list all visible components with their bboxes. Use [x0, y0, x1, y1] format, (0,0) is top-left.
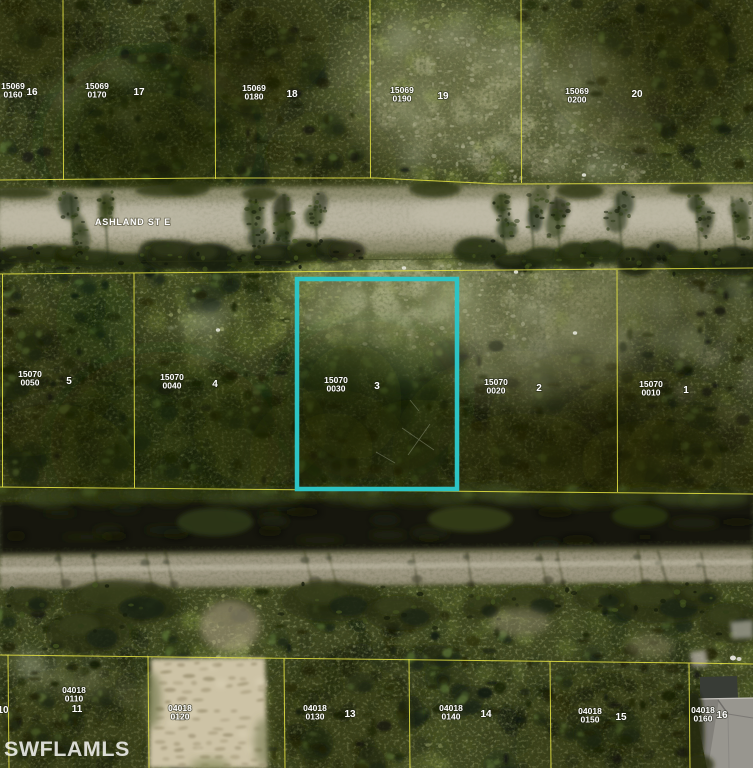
- svg-text:0190: 0190: [393, 94, 412, 104]
- svg-text:2: 2: [536, 383, 542, 394]
- svg-text:0050: 0050: [21, 378, 40, 388]
- svg-text:0110: 0110: [65, 694, 84, 704]
- svg-text:0160: 0160: [694, 714, 713, 724]
- svg-text:0140: 0140: [442, 712, 461, 722]
- svg-text:0150: 0150: [581, 715, 600, 725]
- svg-text:SWFLAMLS: SWFLAMLS: [4, 737, 130, 761]
- svg-text:0010: 0010: [642, 388, 661, 398]
- svg-text:0200: 0200: [568, 95, 587, 105]
- svg-text:0040: 0040: [163, 381, 182, 391]
- svg-text:5: 5: [66, 376, 72, 387]
- svg-text:16: 16: [26, 87, 38, 98]
- svg-text:0160: 0160: [4, 90, 23, 100]
- svg-text:0120: 0120: [171, 712, 190, 722]
- svg-text:19: 19: [437, 91, 449, 102]
- svg-text:0020: 0020: [487, 386, 506, 396]
- svg-text:0180: 0180: [245, 92, 264, 102]
- svg-text:17: 17: [133, 87, 145, 98]
- svg-text:3: 3: [374, 381, 380, 392]
- svg-text:10: 10: [0, 705, 9, 716]
- svg-text:11: 11: [72, 704, 83, 715]
- svg-text:15: 15: [615, 712, 627, 723]
- svg-text:14: 14: [480, 709, 492, 720]
- svg-text:4: 4: [212, 379, 218, 390]
- svg-text:13: 13: [344, 709, 356, 720]
- svg-text:20: 20: [631, 89, 643, 100]
- svg-text:0130: 0130: [306, 712, 325, 722]
- svg-text:1: 1: [683, 385, 689, 396]
- svg-text:0170: 0170: [88, 90, 107, 100]
- svg-text:0030: 0030: [327, 384, 346, 394]
- svg-text:ASHLAND ST E: ASHLAND ST E: [95, 217, 171, 227]
- svg-text:18: 18: [286, 89, 298, 100]
- svg-text:16: 16: [716, 710, 728, 721]
